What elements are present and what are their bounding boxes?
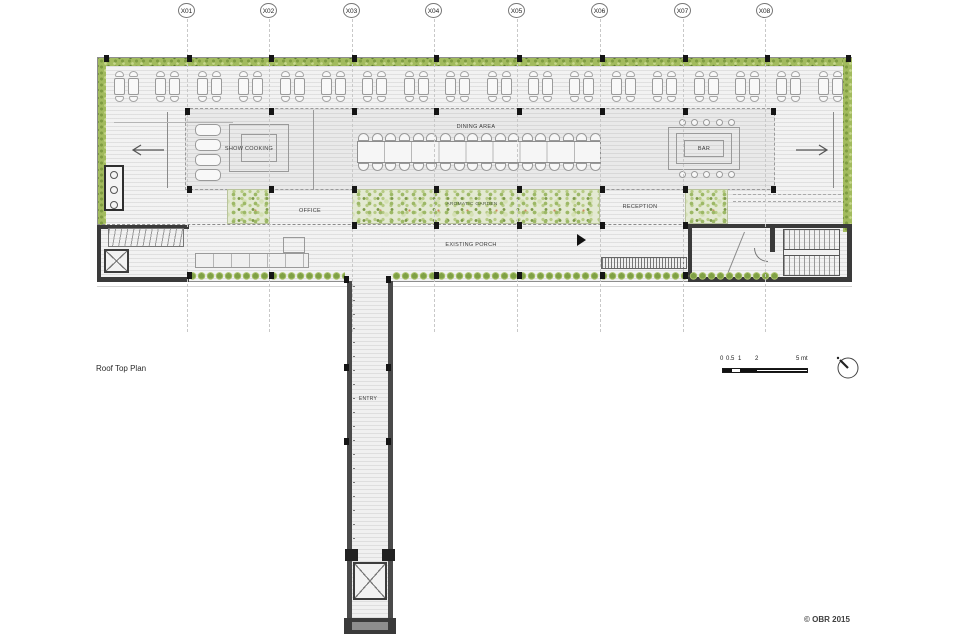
- terrace-chair: [543, 71, 552, 77]
- rail-mid: [313, 110, 314, 190]
- dining-chair: [399, 133, 410, 141]
- terrace-chair: [777, 71, 786, 77]
- column-marker: [517, 108, 522, 115]
- column-marker: [386, 438, 391, 445]
- corridor-ticks: [353, 286, 355, 576]
- corridor-pier: [345, 549, 358, 561]
- dining-chair: [481, 133, 492, 141]
- elevator-west: [104, 249, 129, 273]
- terrace-table: [776, 78, 787, 95]
- column-marker: [386, 364, 391, 371]
- column-marker: [352, 55, 357, 62]
- dining-chair: [495, 163, 506, 171]
- terrace-table: [155, 78, 166, 95]
- column-marker: [517, 272, 522, 279]
- terrace-table: [749, 78, 760, 95]
- hedge-right: [843, 58, 852, 232]
- elevator-entry: [353, 562, 387, 600]
- terrace-chair: [750, 71, 759, 77]
- grid-bubble: X05: [508, 3, 525, 18]
- column-marker: [104, 55, 109, 62]
- kitchen-appliance: [283, 237, 305, 253]
- grid-bubble: X01: [178, 3, 195, 18]
- left-arrow-icon: [128, 144, 166, 156]
- terrace-table: [197, 78, 208, 95]
- terrace-chair: [363, 71, 372, 77]
- column-marker: [187, 186, 192, 193]
- corridor-pier: [382, 549, 395, 561]
- dining-chair: [549, 133, 560, 141]
- corridor-end-inner: [352, 622, 388, 630]
- terrace-table: [569, 78, 580, 95]
- terrace-table: [362, 78, 373, 95]
- terrace-table: [583, 78, 594, 95]
- column-marker: [683, 108, 688, 115]
- column-marker: [269, 272, 274, 279]
- terrace-table: [487, 78, 498, 95]
- terrace-table: [694, 78, 705, 95]
- fixture-circle: [110, 201, 118, 209]
- play-triangle-icon: [577, 234, 586, 246]
- column-marker: [269, 55, 274, 62]
- terrace-table: [128, 78, 139, 95]
- dining-chair: [413, 133, 424, 141]
- terrace-table: [625, 78, 636, 95]
- column-marker: [683, 222, 688, 229]
- column-marker: [434, 108, 439, 115]
- column-marker: [600, 272, 605, 279]
- terrace-chair: [502, 96, 511, 102]
- fixture-circle: [110, 186, 118, 194]
- column-marker: [765, 55, 770, 62]
- column-marker: [771, 186, 776, 193]
- terrace-table: [114, 78, 125, 95]
- stair-west: [108, 228, 184, 247]
- terrace-chair: [695, 96, 704, 102]
- kitchen-counter: [195, 253, 309, 268]
- column-marker: [683, 186, 688, 193]
- deck-dash-line: [733, 194, 841, 195]
- terrace-table: [211, 78, 222, 95]
- north-arrow-icon: [832, 352, 862, 382]
- terrace-table: [790, 78, 801, 95]
- terrace-table: [501, 78, 512, 95]
- corridor-wall-right: [388, 281, 393, 618]
- column-marker: [846, 55, 851, 62]
- column-marker: [517, 222, 522, 229]
- column-marker: [185, 108, 190, 115]
- terrace-chair: [584, 71, 593, 77]
- column-marker: [344, 364, 349, 371]
- terrace-table: [735, 78, 746, 95]
- scalebar-segment: [740, 369, 757, 372]
- grid-bubble: X08: [756, 3, 773, 18]
- terrace-table: [818, 78, 829, 95]
- terrace-table: [832, 78, 843, 95]
- bar-label: BAR: [684, 146, 724, 153]
- terrace-table: [528, 78, 539, 95]
- office-label: OFFICE: [285, 208, 335, 215]
- rail-left: [167, 112, 168, 188]
- terrace-chair: [529, 71, 538, 77]
- grid-line: [517, 19, 518, 332]
- terrace-chair: [488, 71, 497, 77]
- terrace-table: [169, 78, 180, 95]
- grid-line: [600, 19, 601, 332]
- terrace-table: [418, 78, 429, 95]
- grid-bubble: X04: [425, 3, 442, 18]
- wall: [847, 224, 852, 282]
- terrace-chair: [709, 71, 718, 77]
- scalebar-segment: [757, 371, 807, 372]
- terrace-table: [445, 78, 456, 95]
- bar-stool: [716, 171, 723, 178]
- terrace-chair: [198, 71, 207, 77]
- show-cooking-table: [195, 154, 221, 166]
- show-cooking-label: SHOW COOKING: [214, 146, 284, 153]
- existing-porch-label: EXISTING PORCH: [433, 242, 509, 249]
- column-marker: [386, 276, 391, 283]
- right-arrow-icon: [794, 144, 832, 156]
- dining-long-table: [357, 141, 601, 163]
- terrace-chair: [819, 71, 828, 77]
- grid-bubble: X06: [591, 3, 608, 18]
- grid-line: [765, 19, 766, 332]
- dining-chair: [522, 133, 533, 141]
- terrace-chair: [460, 71, 469, 77]
- column-marker: [600, 186, 605, 193]
- wall: [97, 225, 101, 282]
- terrace-table: [376, 78, 387, 95]
- terrace-chair: [253, 71, 262, 77]
- dining-chair: [454, 133, 465, 141]
- grid-line: [187, 19, 188, 332]
- rooftop-plan-canvas: SHOW COOKING DINING AREA BAR OFFICE AROM…: [0, 0, 960, 639]
- column-marker: [517, 186, 522, 193]
- terrace-table: [542, 78, 553, 95]
- terrace-chair: [833, 71, 842, 77]
- edge-line: [114, 122, 233, 123]
- column-marker: [517, 55, 522, 62]
- terrace-chair: [736, 71, 745, 77]
- grid-line: [434, 19, 435, 332]
- column-marker: [352, 222, 357, 229]
- terrace-chair: [405, 71, 414, 77]
- terrace-chair: [419, 71, 428, 77]
- show-cooking-table: [195, 169, 221, 181]
- column-marker: [187, 272, 192, 279]
- grid-bubble: X07: [674, 3, 691, 18]
- garden-patch-west: [227, 189, 270, 224]
- terrace-chair: [446, 71, 455, 77]
- terrace-chair: [322, 71, 331, 77]
- terrace-chair: [791, 71, 800, 77]
- drawing-title: Roof Top Plan: [96, 364, 146, 373]
- dining-chair: [426, 133, 437, 141]
- terrace-chair: [653, 71, 662, 77]
- column-marker: [187, 55, 192, 62]
- bar-stool: [728, 171, 735, 178]
- terrace-chair: [281, 71, 290, 77]
- terrace-chair: [626, 71, 635, 77]
- terrace-chair: [667, 71, 676, 77]
- dining-chair: [358, 133, 369, 141]
- dining-chair: [563, 133, 574, 141]
- column-marker: [434, 186, 439, 193]
- scalebar-tick-label: 2: [755, 356, 758, 362]
- aromatic-garden-label: AROMATIC GARDEN: [437, 202, 507, 208]
- column-marker: [600, 108, 605, 115]
- terrace-table: [708, 78, 719, 95]
- terrace-chair: [129, 71, 138, 77]
- terrace-chair: [295, 71, 304, 77]
- terrace-chair: [281, 96, 290, 102]
- column-marker: [269, 108, 274, 115]
- grid-line: [269, 19, 270, 332]
- stair-east-landing: [784, 249, 839, 256]
- terrace-chair: [115, 71, 124, 77]
- terrace-table: [459, 78, 470, 95]
- scalebar-tick-label: 1: [738, 356, 741, 362]
- dining-chair: [440, 133, 451, 141]
- terrace-chair: [377, 71, 386, 77]
- dining-chair: [535, 133, 546, 141]
- terrace-table: [294, 78, 305, 95]
- grid-line: [683, 19, 684, 332]
- wall: [97, 277, 189, 282]
- wall: [770, 224, 775, 252]
- column-marker: [683, 55, 688, 62]
- dining-chair: [576, 133, 587, 141]
- reception-label: RECEPTION: [612, 204, 668, 211]
- terrace-table: [404, 78, 415, 95]
- deck-dash-line: [733, 201, 841, 202]
- column-marker: [269, 186, 274, 193]
- entry-label: ENTRY: [354, 396, 382, 402]
- terrace-chair: [170, 71, 179, 77]
- dining-chair: [372, 133, 383, 141]
- terrace-chair: [156, 71, 165, 77]
- dining-chair: [495, 133, 506, 141]
- bar-stool: [728, 119, 735, 126]
- grid-bubble: X03: [343, 3, 360, 18]
- terrace-chair: [612, 71, 621, 77]
- column-marker: [434, 55, 439, 62]
- terrace-chair: [212, 71, 221, 77]
- grid-bubble: X02: [260, 3, 277, 18]
- scalebar-bar: [722, 368, 808, 373]
- terrace-table: [611, 78, 622, 95]
- dining-chair: [467, 133, 478, 141]
- terrace-chair: [709, 96, 718, 102]
- scalebar-tick-label: 0: [720, 356, 723, 362]
- terrace-chair: [502, 71, 511, 77]
- column-marker: [344, 438, 349, 445]
- dining-chair: [454, 163, 465, 171]
- column-marker: [344, 276, 349, 283]
- hedge-top: [98, 58, 851, 66]
- show-cooking-table: [195, 124, 221, 136]
- column-marker: [600, 55, 605, 62]
- column-marker: [352, 108, 357, 115]
- column-marker: [683, 272, 688, 279]
- terrace-chair: [295, 96, 304, 102]
- dining-chair: [385, 133, 396, 141]
- column-marker: [434, 222, 439, 229]
- terrace-table: [666, 78, 677, 95]
- terrace-chair: [695, 71, 704, 77]
- scalebar: 0 0.5 1 2 5 mt: [714, 352, 814, 378]
- garden-patch-east: [685, 189, 728, 224]
- grid-line: [352, 19, 353, 332]
- terrace-table: [252, 78, 263, 95]
- bar-stool: [716, 119, 723, 126]
- dining-area-label: DINING AREA: [436, 124, 516, 131]
- terrace-chair: [488, 96, 497, 102]
- terrace-chair: [336, 71, 345, 77]
- terrace-table: [321, 78, 332, 95]
- column-marker: [352, 186, 357, 193]
- scalebar-tick-label: 0.5: [726, 356, 734, 362]
- scalebar-segment: [723, 369, 732, 372]
- hedge-row-west: [188, 271, 345, 280]
- terrace-chair: [570, 71, 579, 77]
- scalebar-tick-label: 5 mt: [796, 356, 808, 362]
- service-counter-hatched: [601, 257, 687, 269]
- hedge-row-east: [392, 271, 780, 280]
- column-marker: [771, 108, 776, 115]
- terrace-table: [280, 78, 291, 95]
- terrace-table: [652, 78, 663, 95]
- terrace-table: [238, 78, 249, 95]
- terrace-table: [335, 78, 346, 95]
- building-shadow-line: [97, 286, 852, 287]
- column-marker: [434, 272, 439, 279]
- terrace-chair: [239, 71, 248, 77]
- column-marker: [600, 222, 605, 229]
- copyright: © OBR 2015: [804, 615, 850, 624]
- rail-right: [833, 112, 834, 188]
- fixture-circle: [110, 171, 118, 179]
